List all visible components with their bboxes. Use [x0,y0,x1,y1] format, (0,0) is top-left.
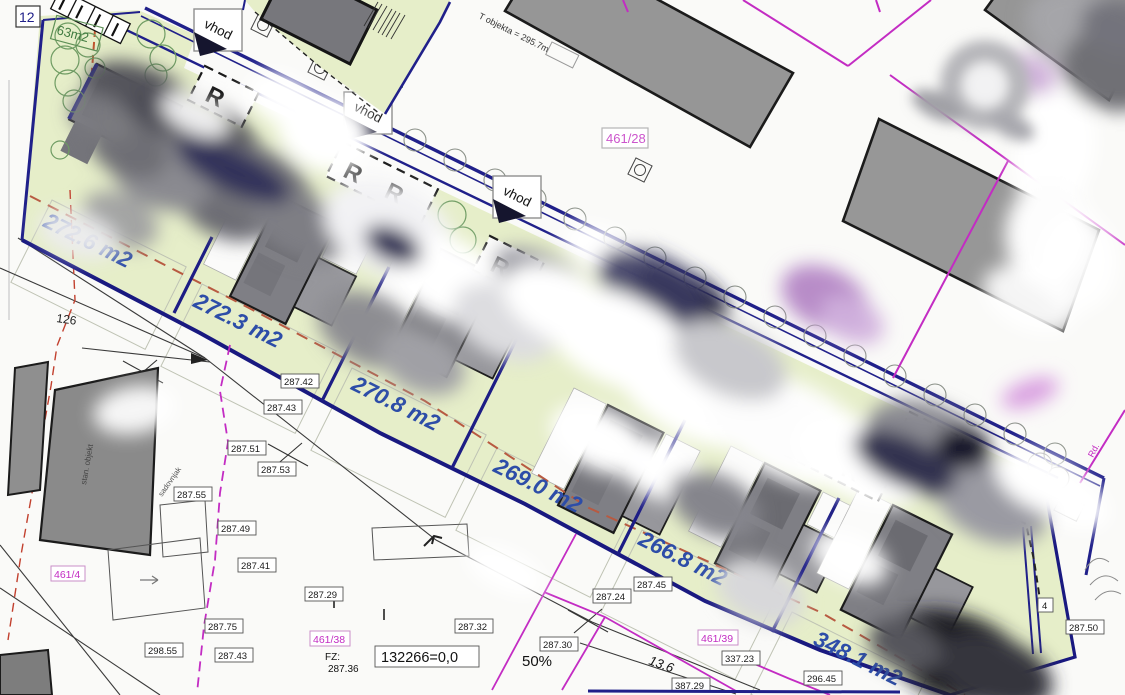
svg-text:287.30: 287.30 [543,640,572,651]
svg-text:287.29: 287.29 [308,590,337,601]
svg-text:298.55: 298.55 [148,646,177,657]
svg-text:126: 126 [56,311,78,328]
svg-text:12: 12 [19,9,35,25]
svg-text:287.43: 287.43 [267,403,296,414]
svg-text:287.45: 287.45 [637,580,666,591]
svg-text:287.75: 287.75 [208,622,237,633]
svg-text:4: 4 [1042,601,1047,612]
svg-text:287.32: 287.32 [458,622,487,633]
svg-text:287.49: 287.49 [221,524,250,535]
svg-text:461/38: 461/38 [313,634,345,646]
svg-text:461/39: 461/39 [701,633,733,645]
svg-text:50%: 50% [522,653,552,670]
svg-text:287.55: 287.55 [177,490,206,501]
svg-text:287.53: 287.53 [261,465,290,476]
svg-text:287.43: 287.43 [218,651,247,662]
svg-text:287.42: 287.42 [284,377,313,388]
svg-text:FZ:: FZ: [325,652,340,663]
svg-text:287.50: 287.50 [1069,623,1098,634]
svg-text:287.36: 287.36 [328,664,359,675]
svg-text:337.23: 337.23 [725,654,754,665]
svg-text:296.45: 296.45 [807,674,836,685]
svg-text:461/28: 461/28 [606,131,646,146]
svg-text:461/4: 461/4 [54,569,80,581]
svg-text:287.41: 287.41 [241,561,270,572]
svg-text:287.51: 287.51 [231,444,260,455]
svg-text:287.24: 287.24 [596,592,625,603]
svg-text:132266=0,0: 132266=0,0 [381,650,458,666]
